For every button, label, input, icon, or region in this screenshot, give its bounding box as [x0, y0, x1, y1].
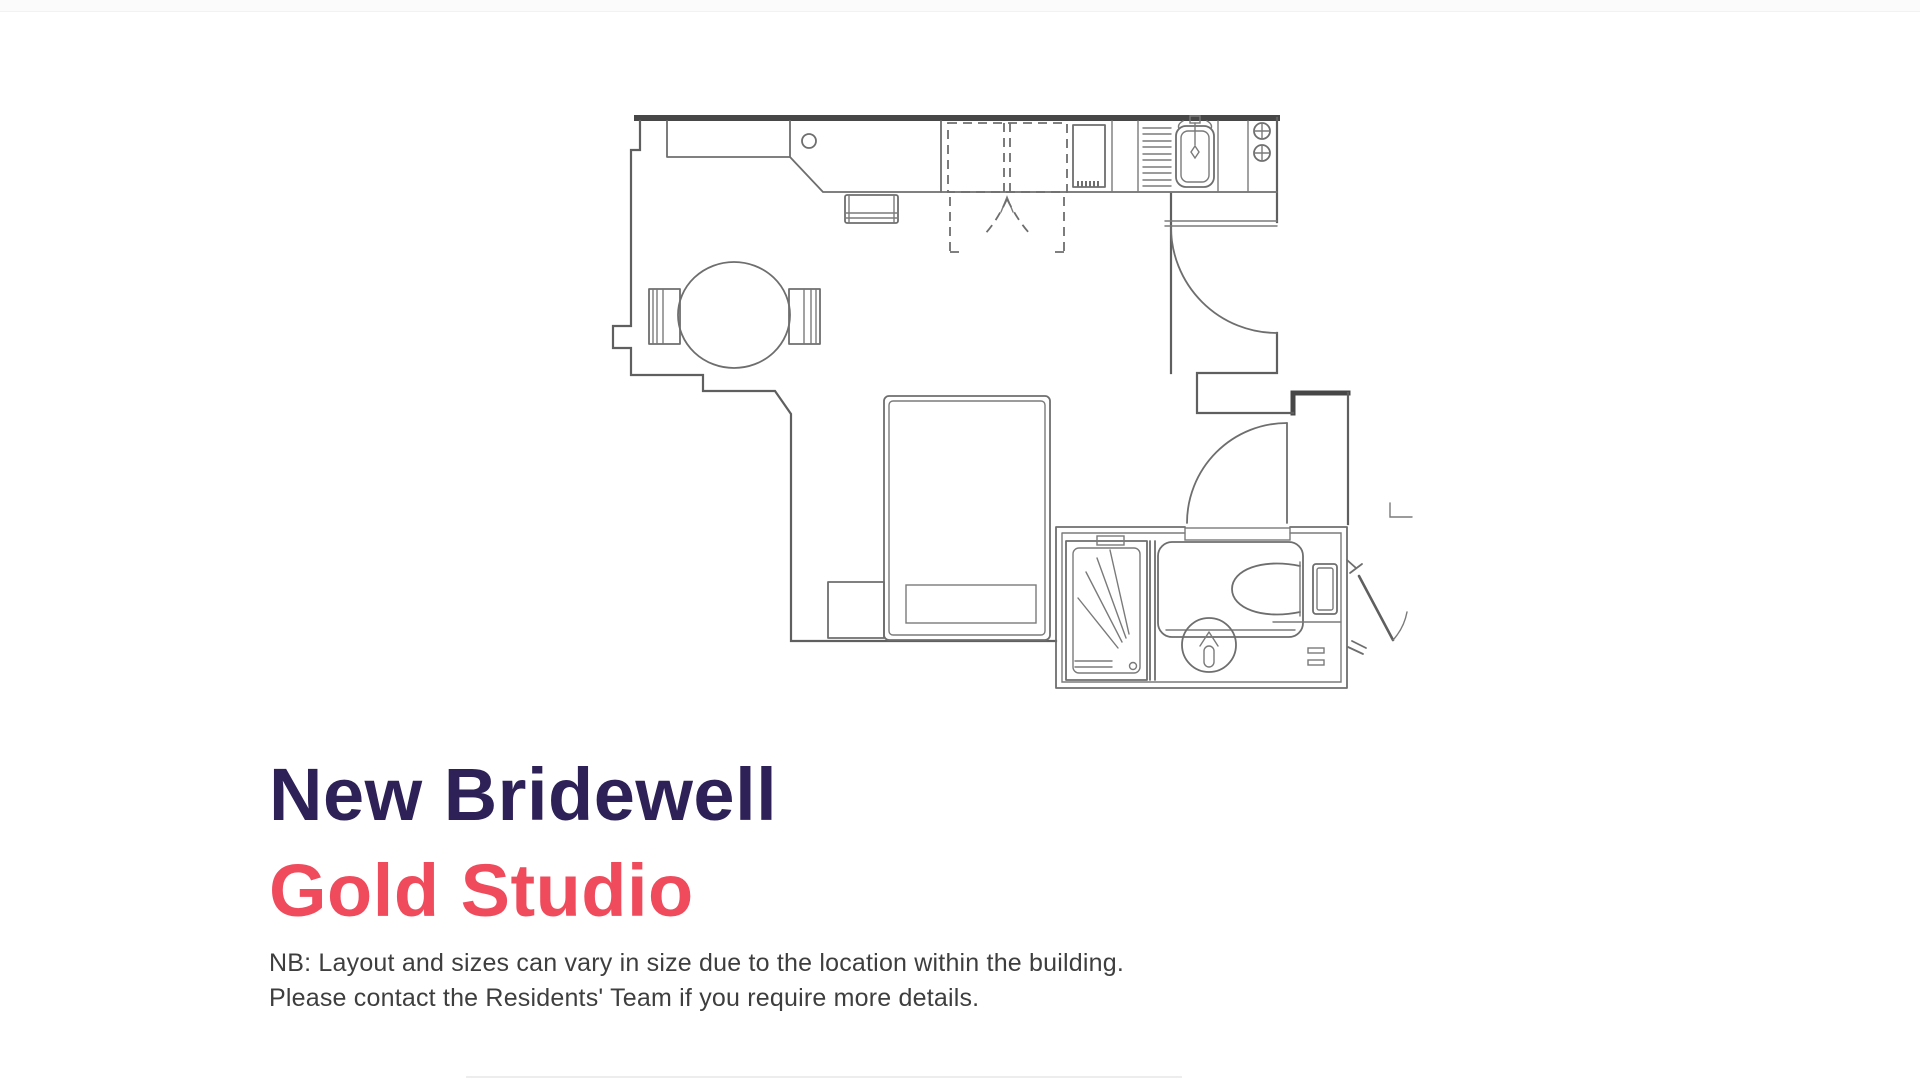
wash-basin — [1182, 618, 1236, 672]
desk-chair — [845, 195, 898, 223]
draining-board — [1143, 128, 1171, 186]
dining-table — [678, 262, 790, 368]
wet-room-floor — [1158, 542, 1303, 637]
entry-door-arc — [1171, 227, 1277, 333]
note-line-1: NB: Layout and sizes can vary in size du… — [269, 946, 1124, 981]
bed — [884, 396, 1050, 640]
shower-screen — [1150, 541, 1155, 680]
bedside-table — [828, 582, 884, 638]
note-line-2: Please contact the Residents' Team if yo… — [269, 981, 1124, 1016]
note-block: NB: Layout and sizes can vary in size du… — [269, 946, 1124, 1016]
page-title-building: New Bridewell — [269, 754, 777, 837]
kitchen-sink — [1176, 116, 1214, 187]
page-title-unit: Gold Studio — [269, 850, 777, 933]
fridge — [1073, 125, 1105, 187]
hob — [1254, 123, 1270, 161]
wall-brackets — [1308, 648, 1324, 665]
desk-grommet — [802, 134, 816, 148]
toilet — [1232, 562, 1341, 622]
heading-block: New Bridewell Gold Studio — [269, 754, 777, 933]
top-border — [0, 0, 1920, 12]
bathroom-door-threshold — [1185, 528, 1290, 540]
page: New Bridewell Gold Studio NB: Layout and… — [0, 0, 1920, 1080]
bottom-divider — [466, 1076, 1182, 1078]
floorplan-image — [590, 95, 1420, 710]
floorplan-svg — [590, 95, 1420, 710]
shower — [1066, 536, 1155, 680]
counter-dividers — [1112, 121, 1248, 192]
dining-chair-right — [789, 289, 820, 344]
walls — [613, 118, 1348, 641]
bathroom-door-arc — [1187, 423, 1287, 523]
wardrobe — [948, 123, 1067, 252]
pillow — [906, 585, 1036, 623]
dining-chair-left — [649, 289, 680, 344]
shower-drain — [1130, 663, 1137, 670]
corridor-door — [1347, 503, 1412, 654]
